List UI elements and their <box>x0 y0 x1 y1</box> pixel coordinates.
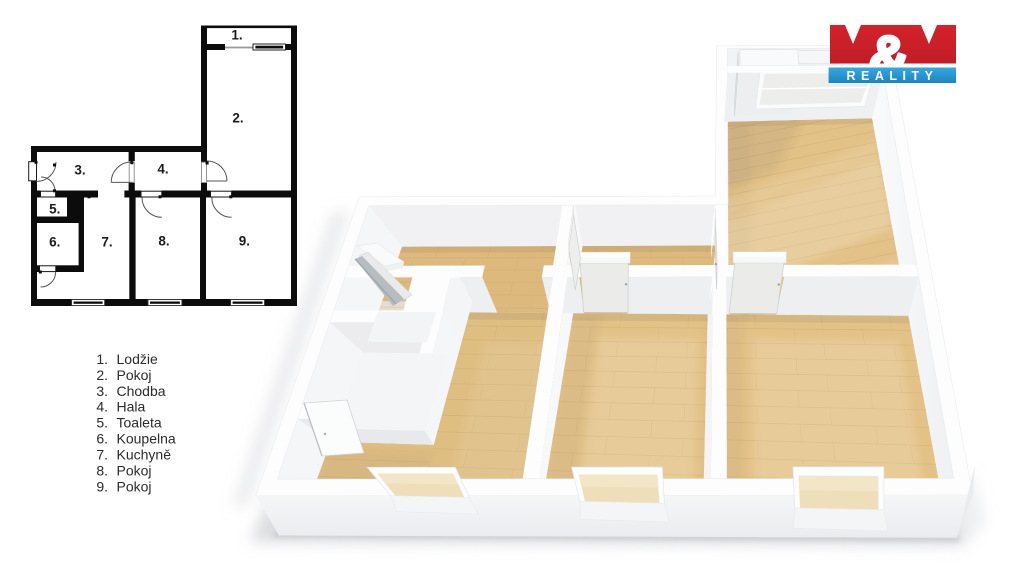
svg-text:Pokoj: Pokoj <box>117 478 152 494</box>
svg-text:7.: 7. <box>101 235 112 250</box>
svg-text:1.: 1. <box>231 28 242 43</box>
svg-text:Chodba: Chodba <box>117 383 166 399</box>
svg-text:Hala: Hala <box>117 399 146 415</box>
svg-text:1.: 1. <box>96 351 108 367</box>
svg-text:Pokoj: Pokoj <box>117 462 152 478</box>
svg-text:2.: 2. <box>96 367 108 383</box>
svg-text:6.: 6. <box>96 431 108 447</box>
svg-text:5.: 5. <box>49 202 60 217</box>
svg-text:3.: 3. <box>96 383 108 399</box>
svg-text:Lodžie: Lodžie <box>117 351 158 367</box>
svg-text:9.: 9. <box>96 478 108 494</box>
svg-text:5.: 5. <box>96 415 108 431</box>
svg-text:6.: 6. <box>49 235 60 250</box>
svg-text:2.: 2. <box>232 111 243 126</box>
svg-text:3.: 3. <box>74 163 85 178</box>
svg-text:4.: 4. <box>96 399 108 415</box>
svg-text:REALITY: REALITY <box>847 69 939 83</box>
svg-text:8.: 8. <box>96 462 108 478</box>
svg-text:8.: 8. <box>158 233 169 248</box>
svg-text:7.: 7. <box>96 447 108 463</box>
svg-text:Toaleta: Toaleta <box>117 415 162 431</box>
svg-text:4.: 4. <box>157 162 168 177</box>
svg-text:Pokoj: Pokoj <box>117 367 152 383</box>
svg-text:9.: 9. <box>239 233 250 248</box>
svg-text:Koupelna: Koupelna <box>117 431 176 447</box>
svg-text:Kuchyně: Kuchyně <box>117 447 172 463</box>
